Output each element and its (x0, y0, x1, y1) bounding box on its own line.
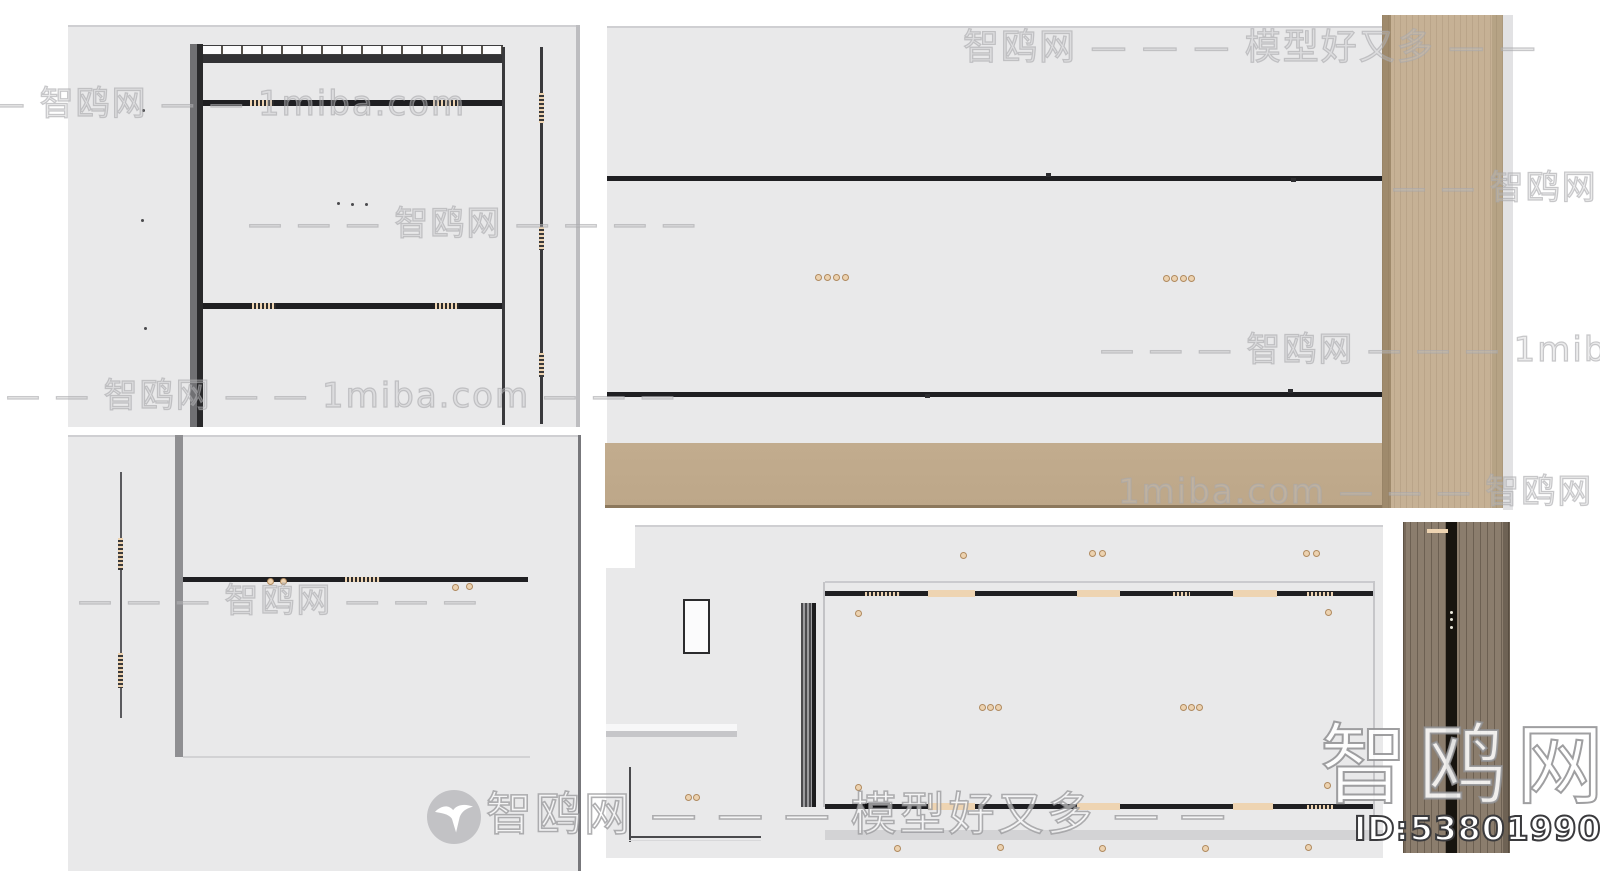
light-dot-white (1450, 611, 1453, 614)
light-dot-tan (1314, 551, 1319, 556)
light-dot-tan (988, 705, 993, 710)
watermark-row: — — 智鸥网 — — (1392, 171, 1600, 205)
watermark-row: 智鸥网 — — — 模型好又多 — — (963, 30, 1538, 66)
light-dot-tan (1304, 551, 1309, 556)
light-dot-tan (1189, 276, 1194, 281)
watermark-row: — — 智鸥网 — — 1miba.com (0, 87, 466, 121)
light-dot-tan (895, 846, 900, 851)
light-dot-tan (1203, 846, 1208, 851)
light-dot-tan (1100, 551, 1105, 556)
watermark-row: — — — 智鸥网 — — — (78, 584, 479, 618)
light-dot-tan (1172, 276, 1177, 281)
light-dot-tan (961, 553, 966, 558)
seagull-logo-icon (433, 798, 475, 836)
light-dot-white (1450, 618, 1453, 621)
light-dot-tan (834, 275, 839, 280)
watermark-row: — — — 智鸥网 — — — — (248, 207, 698, 241)
watermark-row: 1miba.com — — — 智鸥网 — — — (1118, 475, 1600, 509)
corner-brand-watermark: 智鸥网 (1320, 722, 1600, 810)
light-dot-tan (996, 705, 1001, 710)
light-dot-tan (843, 275, 848, 280)
watermark-row: — — 智鸥网 — — 1miba.com — — — (6, 379, 677, 413)
light-dot-tan (998, 845, 1003, 850)
light-dot-dark (141, 219, 144, 222)
light-dot-tan (1326, 610, 1331, 615)
light-dot-tan (1189, 705, 1194, 710)
light-dot-dark (144, 327, 147, 330)
site-logo-circle (427, 790, 481, 844)
light-dot-tan (1197, 705, 1202, 710)
light-dot-tan (1181, 705, 1186, 710)
light-dot-tan (825, 275, 830, 280)
watermark-row: — — — 智鸥网 — — — 1miba.com (1100, 333, 1600, 367)
light-dot-tan (856, 611, 861, 616)
light-dot-tan (816, 275, 821, 280)
light-dot-tan (980, 705, 985, 710)
light-dot-tan (1164, 276, 1169, 281)
light-dot-tan (1181, 276, 1186, 281)
model-preview-image: 智鸥网 — — — 模型好又多 — — — — 智鸥网 — — 1miba.co… (0, 0, 1600, 891)
model-id-badge: ID:538019907 (1354, 812, 1600, 845)
footer-watermark-text: 智鸥网 — — — 模型好又多 — — (486, 791, 1229, 837)
light-dot-tan (1306, 845, 1311, 850)
light-dot-tan (1100, 846, 1105, 851)
light-dot-tan (1090, 551, 1095, 556)
light-dot-white (1450, 626, 1453, 629)
